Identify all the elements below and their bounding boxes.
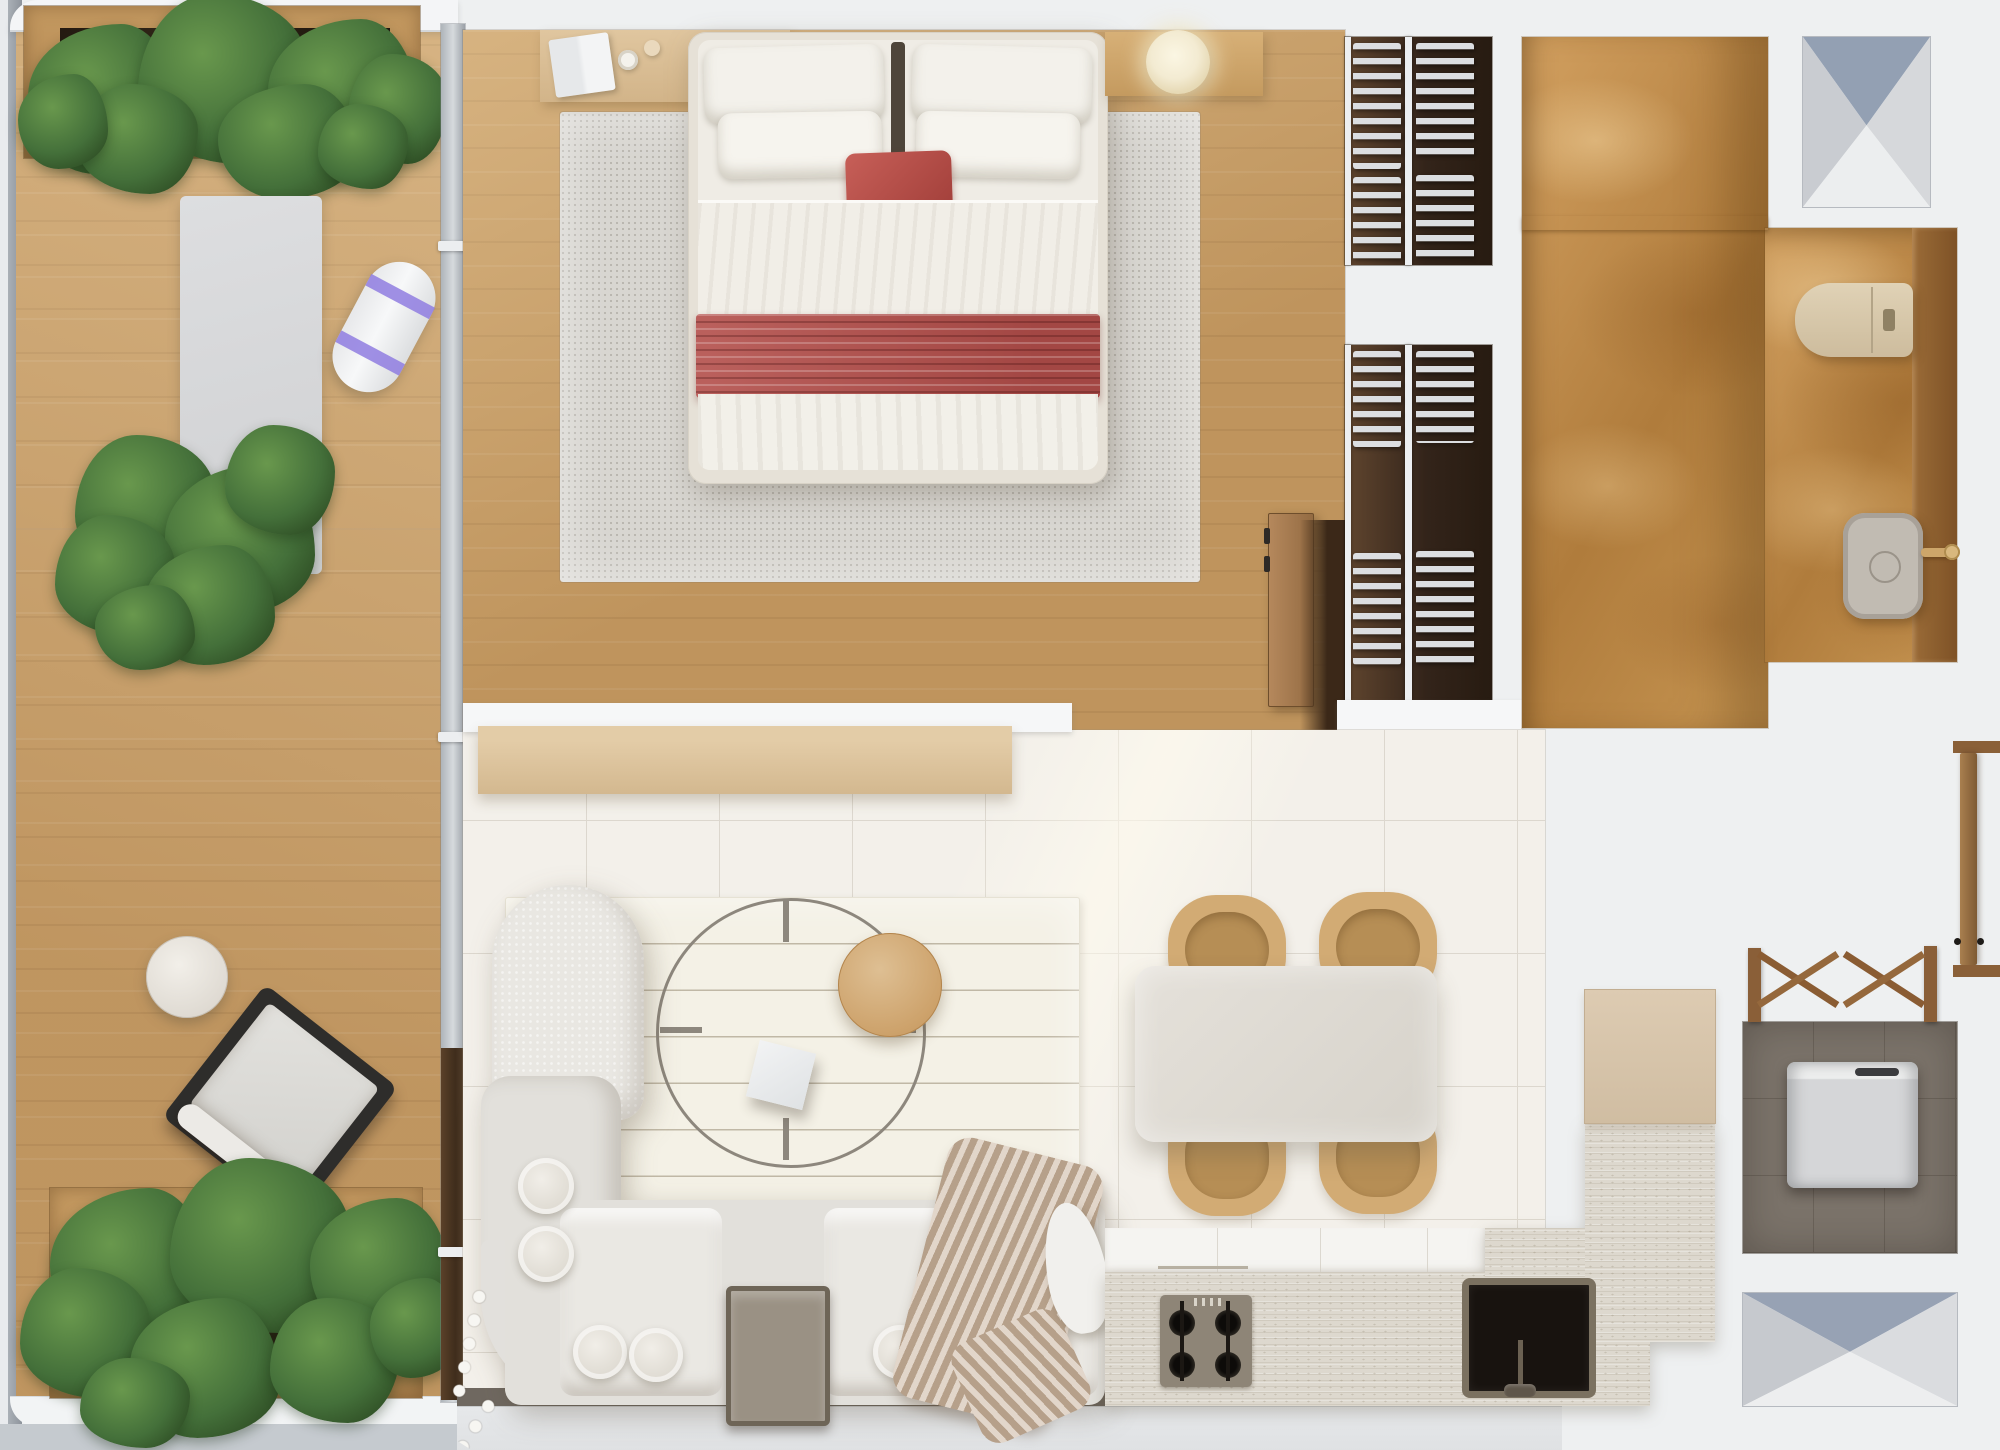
wood-disc-top [838, 933, 942, 1037]
kitchen-tall-counter [1585, 1123, 1715, 1342]
cooktop-knob [1194, 1298, 1197, 1306]
round-pouf [518, 1226, 574, 1282]
skylight-bottom-right [1743, 1293, 1957, 1406]
mat-strap [365, 274, 435, 319]
coffee-table-bar-north [783, 900, 789, 942]
clothes-hangers [1416, 551, 1474, 667]
wall-console [478, 726, 1012, 794]
round-pouf [573, 1325, 627, 1379]
closet-entry-shadow [1300, 520, 1345, 730]
clothes-hangers [1353, 553, 1401, 665]
sphere-lamp [1146, 30, 1210, 94]
plant-cluster-bottom [20, 1158, 450, 1448]
clothes-hangers [1416, 43, 1474, 163]
laptop [548, 32, 615, 98]
clothes-hangers [1416, 351, 1474, 443]
closet-rail [1405, 345, 1412, 700]
basin-drain [1869, 551, 1901, 583]
closet-rail [1345, 345, 1351, 700]
closet-section-lower [1345, 345, 1492, 700]
cooktop-knob [1202, 1298, 1205, 1306]
gas-cooktop [1160, 1295, 1252, 1387]
plant-cluster-top [18, 0, 448, 206]
plant-foliage [318, 104, 408, 189]
washing-machine [1787, 1062, 1918, 1188]
basin-faucet-knob [1944, 544, 1960, 560]
cooktop-grate-bar [1180, 1301, 1184, 1381]
closet-door-handle [1264, 556, 1270, 572]
coffee-table-bar-south [783, 1118, 789, 1160]
washer-lid-slot [1855, 1068, 1899, 1076]
clothes-hangers [1353, 43, 1401, 169]
cooktop-knob [1218, 1298, 1221, 1306]
desk-accessory [644, 40, 660, 56]
cabinet-seam [1427, 1228, 1428, 1274]
entry-door-leaf [1960, 753, 1977, 965]
washbasin [1843, 513, 1923, 619]
round-pouf [629, 1328, 683, 1382]
clothes-hangers [1416, 175, 1474, 263]
double-bed [688, 32, 1108, 484]
floor-plan [0, 0, 2000, 1450]
entry-door-frame-top [1953, 741, 2000, 753]
cabinet-seam [1320, 1228, 1321, 1274]
black-undermount-sink [1462, 1278, 1596, 1398]
plant-foliage [80, 1358, 190, 1448]
plant-foliage [225, 425, 335, 535]
rack-leg [1748, 948, 1761, 1022]
coffee-table-bar-west [660, 1027, 702, 1033]
cooktop-grate-bar [1226, 1301, 1230, 1381]
closet-rail [1345, 37, 1351, 265]
stone-dining-table [1135, 966, 1437, 1142]
taupe-side-table [726, 1286, 830, 1426]
desk-cup [618, 50, 638, 70]
sink-faucet-stem [1518, 1340, 1523, 1388]
toilet-flush-button [1883, 309, 1895, 331]
mat-strap [335, 330, 405, 375]
round-side-table [146, 936, 228, 1018]
entry-door-frame-bottom [1953, 965, 2000, 977]
plant-foliage [18, 74, 108, 169]
rack-leg [1924, 946, 1937, 1022]
closet-end-wall [1337, 700, 1522, 730]
closet-section-upper [1345, 37, 1492, 265]
round-pouf [518, 1158, 574, 1214]
sink-faucet-handle [1504, 1384, 1536, 1397]
plant-cluster-middle [55, 425, 340, 677]
tall-beige-cabinet [1585, 990, 1715, 1123]
bathroom-shelf-ledge [1522, 216, 1768, 230]
entry-door-handle [1977, 938, 1984, 945]
red-runner-blanket [696, 314, 1100, 398]
plant-foliage [95, 585, 195, 670]
cooktop-knob [1210, 1298, 1213, 1306]
room-bathroom-left [1522, 37, 1768, 728]
toilet-seat-seam [1871, 287, 1873, 353]
clothes-hangers [1353, 177, 1401, 261]
closet-door-handle [1264, 528, 1270, 544]
cabinet-handle [1158, 1266, 1248, 1269]
room-balcony [0, 0, 465, 1450]
drying-rack [1743, 940, 1957, 1024]
toilet [1795, 283, 1913, 357]
bed-foot-duvet [698, 394, 1098, 470]
skylight-top-right [1803, 37, 1930, 207]
closet-rail [1405, 37, 1412, 265]
clothes-hangers [1353, 351, 1401, 447]
